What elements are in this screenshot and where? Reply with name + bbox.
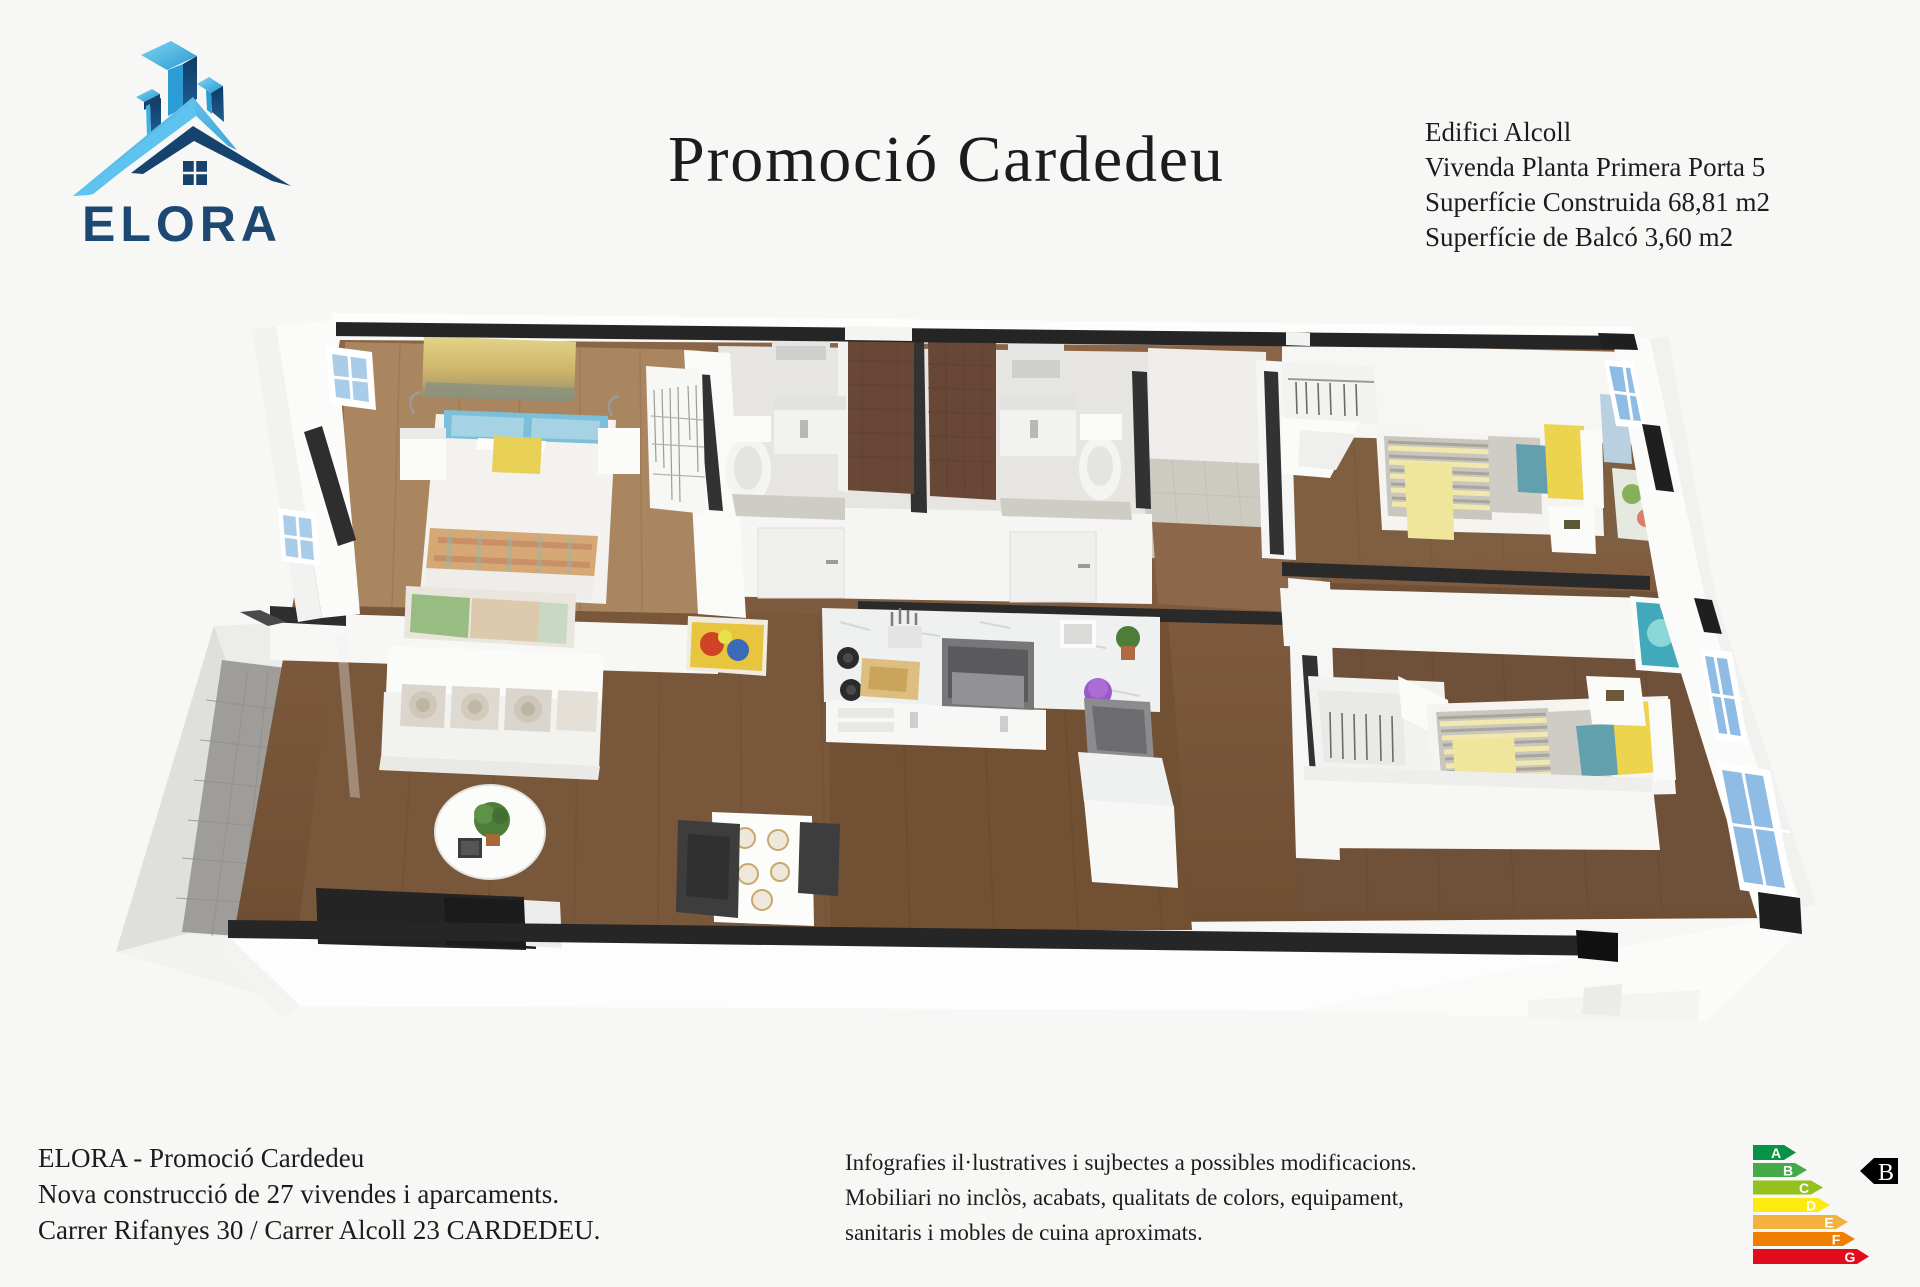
svg-text:ELORA: ELORA [82,196,282,252]
svg-text:B: B [1783,1163,1793,1179]
svg-text:G: G [1845,1249,1856,1265]
svg-text:F: F [1832,1232,1841,1248]
svg-text:D: D [1806,1198,1816,1214]
svg-text:E: E [1824,1215,1833,1231]
svg-text:C: C [1799,1180,1809,1196]
svg-text:B: B [1878,1160,1894,1186]
svg-text:A: A [1771,1145,1781,1161]
